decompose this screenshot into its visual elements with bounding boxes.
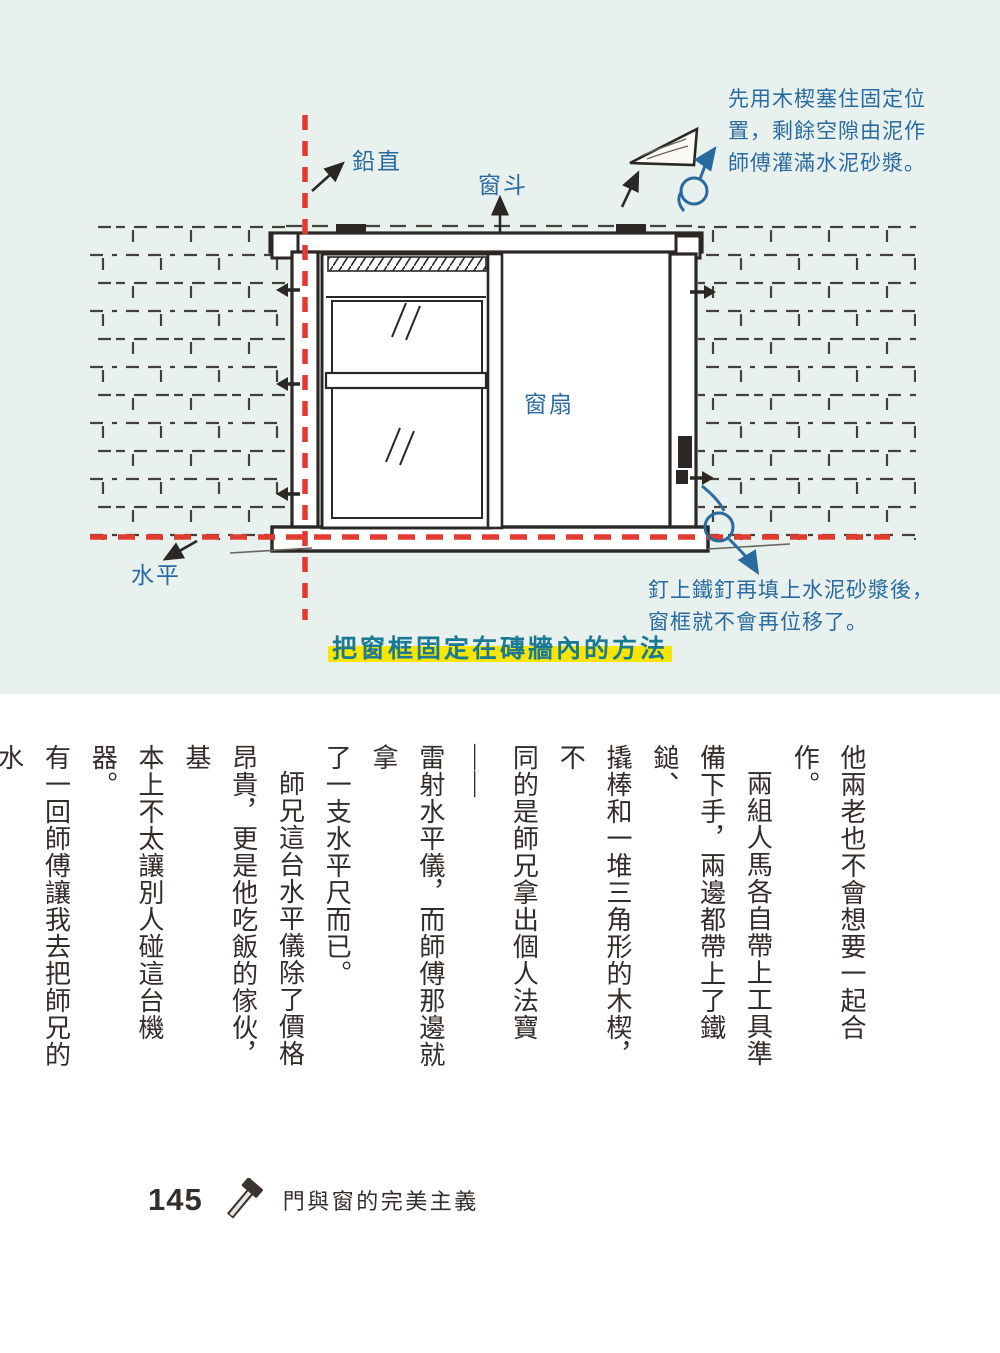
wedge-annotation: 先用木楔塞住固定位 置，剩餘空隙由泥作 師傅灌滿水泥砂漿。 [728,84,926,180]
window-sash-label: 窗扇 [524,385,574,419]
text-column: 本上不太讓別人碰這台機器。 [78,744,172,1084]
wood-wedge-icon [630,129,697,165]
text-column: 他兩老也不會想要一起合作。 [780,744,874,1084]
wedge-tab-right [616,224,646,234]
mullion [488,254,502,528]
frame-jamb-left [292,252,318,548]
text-column: 備下手，兩邊都帶上了鐵鎚、 [640,744,734,1084]
text-column: 了一支水平尺而已。 [312,744,359,1084]
cement-packing-block [678,436,692,468]
text-column: 有一回師傅讓我去把師兄的水 [0,744,78,1084]
page-footer: 145 門與窗的完美主義 [148,1178,479,1222]
wedge-tab-left [336,224,366,234]
level-label: 水平 [131,556,181,590]
page-number: 145 [148,1182,203,1218]
text-column: 師兄這台水平儀除了價格 [266,744,313,1084]
sash-mid-rail [326,373,486,388]
chapter-title: 門與窗的完美主義 [283,1184,479,1216]
hammer-icon [221,1178,265,1222]
brick-wall-left [90,222,286,540]
text-column: 同的是師兄拿出個人法寶—— [453,744,547,1084]
frame-lintel [270,233,702,252]
text-column: 昂貴，更是他吃飯的傢伙，基 [172,744,266,1084]
diagram-section: 先用木楔塞住固定位 置，剩餘空隙由泥作 師傅灌滿水泥砂漿。 鉛直 窗斗 窗扇 水… [0,0,1000,694]
diagram-caption-text: 把窗框固定在磚牆內的方法 [328,634,672,663]
window-sash-panel [322,254,502,528]
cement-packing-block [676,470,688,484]
book-page: 先用木楔塞住固定位 置，剩餘空隙由泥作 師傅灌滿水泥砂漿。 鉛直 窗斗 窗扇 水… [0,0,1000,1353]
body-text: 他兩老也不會想要一起合作。 兩組人馬各自帶上工具準 備下手，兩邊都帶上了鐵鎚、 … [0,744,874,1084]
text-column: 撬棒和一堆三角形的木楔，不 [546,744,640,1084]
wedge-arrow-icon [622,175,637,207]
packing-hatch [328,257,486,271]
window-box-label: 窗斗 [478,166,528,200]
text-column: 兩組人馬各自帶上工具準 [734,744,781,1084]
frame-jamb-right [670,254,696,548]
plumb-arrow-icon [312,165,341,191]
diagram-caption: 把窗框固定在磚牆內的方法 [0,629,1000,665]
plumb-label: 鉛直 [352,142,402,176]
text-column: 雷射水平儀，而師傅那邊就拿 [359,744,453,1084]
brick-wall-right [698,222,916,540]
